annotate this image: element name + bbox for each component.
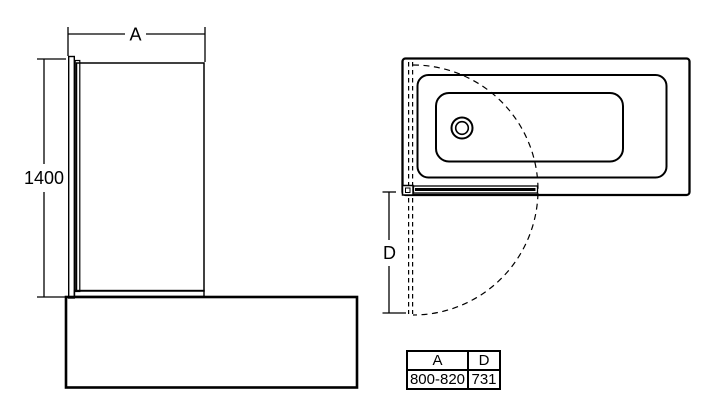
plan-view: D (383, 59, 690, 316)
dim-a-label: A (129, 25, 141, 45)
dim-d: D (383, 192, 407, 313)
dim-a: A (68, 25, 205, 63)
technical-drawing-page: A 1400 (0, 0, 720, 420)
front-view: A 1400 (24, 25, 357, 388)
wall-profile (69, 57, 75, 299)
spec-table-value-row: 800-820 731 (407, 370, 500, 389)
spec-table-header-row: A D (407, 351, 500, 370)
bathtub-front-outline (66, 297, 357, 388)
tub-plan-outline (403, 59, 690, 196)
spec-table-value-d: 731 (468, 370, 500, 389)
spec-table-header-a: A (407, 351, 468, 370)
drain-outer-ring (452, 118, 473, 139)
dim-1400-label: 1400 (24, 168, 64, 188)
spec-table-header-d: D (468, 351, 500, 370)
dim-1400: 1400 (24, 59, 66, 297)
dim-d-label: D (383, 243, 396, 263)
spec-table-value-a: 800-820 (407, 370, 468, 389)
drain-inner-ring (456, 122, 469, 135)
hinge-notch (406, 188, 411, 193)
glass-panel (77, 63, 205, 291)
spec-table: A D 800-820 731 (406, 350, 501, 390)
drain-circle (452, 118, 473, 139)
technical-drawing-canvas: A 1400 (0, 0, 720, 420)
tub-plan-basin (436, 93, 623, 162)
screen-closed-bar (414, 186, 538, 193)
hinge-block (403, 186, 414, 196)
